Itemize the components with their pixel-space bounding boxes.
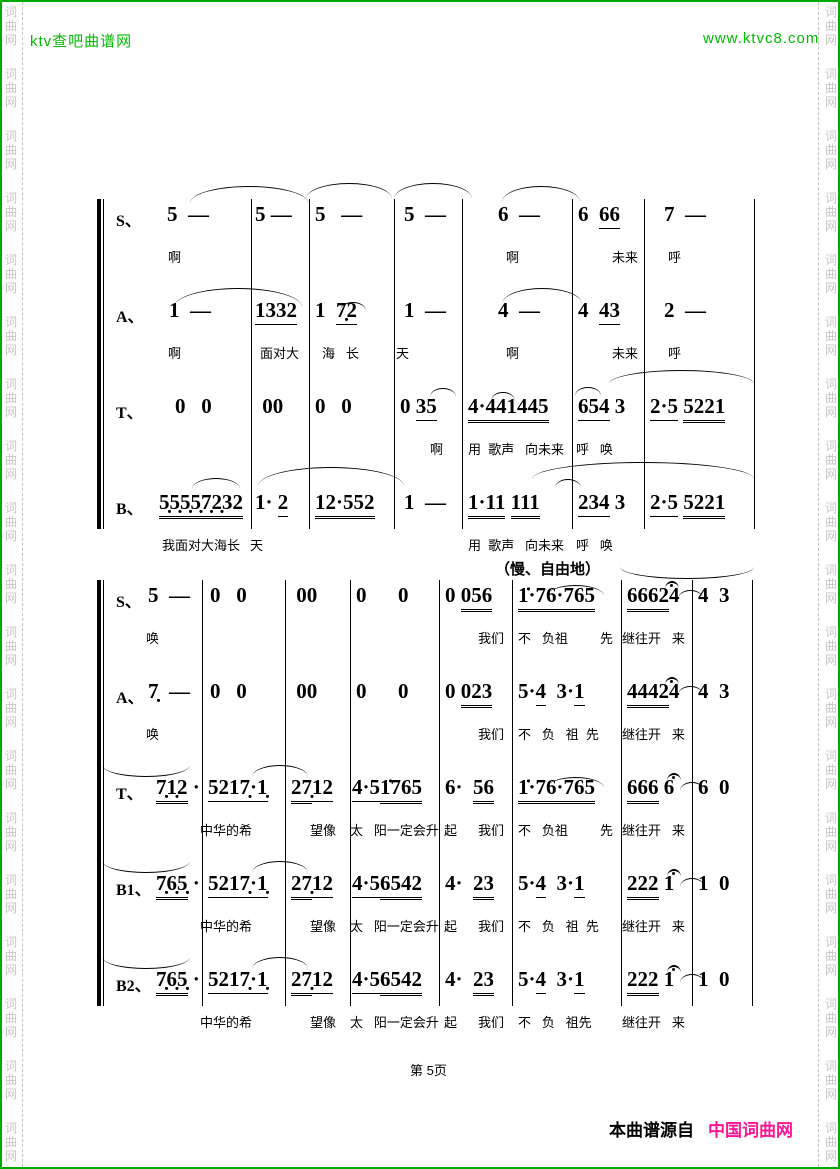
lyric: 天 (250, 535, 263, 554)
note-group: 222 (627, 870, 659, 900)
lyric: 呼 (668, 343, 681, 362)
note-group: 5217̣·1̣ (208, 774, 268, 802)
note-group: 7̣ — (148, 678, 190, 705)
watermark-char: 曲 (825, 640, 837, 652)
measure: 222 1 (621, 870, 692, 908)
watermark-char: 曲 (825, 1074, 837, 1086)
watermark-char: 曲 (5, 1012, 17, 1024)
measure: 4· 23 (439, 966, 512, 1004)
note-group: 222 (627, 966, 659, 996)
watermark-char: 网 (5, 34, 17, 46)
watermark-char: 曲 (5, 764, 17, 776)
watermark-char: 词 (825, 626, 837, 638)
lyric: 唤 (146, 628, 159, 647)
watermark-char: 词 (825, 440, 837, 452)
watermark-char: 网 (825, 34, 837, 46)
measure: 5 — (157, 201, 251, 239)
watermark-char: 曲 (825, 764, 837, 776)
note-group: 234 (578, 489, 610, 517)
barline (754, 199, 755, 295)
note-group: 5 — (167, 201, 209, 228)
measure: 0 056 (439, 582, 512, 620)
watermark-char: 网 (5, 1088, 17, 1100)
watermark-char: 曲 (5, 454, 17, 466)
lyric: 呼 唤 (576, 439, 613, 458)
watermark-char: 曲 (825, 1136, 837, 1148)
note-group: 0 (445, 678, 461, 705)
page-number: 第 5页 (410, 1060, 447, 1079)
watermark-char: 词 (5, 192, 17, 204)
score-page: ktv查吧曲谱网 www.ktvc8.com （慢、自由地） 第 5页 本曲谱源… (0, 0, 840, 1169)
note-group: 1 (315, 297, 336, 324)
note-group: 5· (518, 678, 536, 705)
measure: 5 — (309, 201, 394, 239)
watermark-char: 曲 (5, 82, 17, 94)
measure: 0 0 (157, 393, 251, 431)
watermark-char: 词 (825, 6, 837, 18)
watermark-char: 网 (825, 964, 837, 976)
watermark-char: 网 (825, 406, 837, 418)
lyric: 太 阳一定会升 (350, 1012, 439, 1031)
note-group: 00 (257, 393, 283, 420)
lyric: 不 负祖 (518, 628, 568, 647)
watermark-char: 曲 (825, 888, 837, 900)
measure: 1· 2 (251, 489, 309, 527)
lyric: 我面对大海长 (162, 535, 240, 554)
note-group: 1 (574, 966, 585, 994)
watermark-char: 网 (5, 220, 17, 232)
watermark-char: 曲 (825, 826, 837, 838)
watermark-char: 曲 (825, 950, 837, 962)
lyric: 起 (444, 820, 457, 839)
watermark-char: 网 (825, 530, 837, 542)
measure: 0 0 (350, 678, 439, 716)
lyric: 太 阳一定会升 (350, 916, 439, 935)
watermark-char: 词 (5, 316, 17, 328)
voice-label: A、 (116, 684, 144, 708)
watermark-char: 曲 (825, 1012, 837, 1024)
lyric: 海 长 (322, 343, 359, 362)
lyric: 我们 (478, 820, 504, 839)
note-group: 6 — (498, 201, 540, 228)
note-group: · (188, 774, 200, 801)
note-group: 7 — (664, 201, 706, 228)
measure: 0 0 (202, 678, 285, 716)
lyric: 先 (600, 628, 613, 647)
measure: 5̣5̣5̣5̣7̣2̣32 (157, 489, 251, 527)
note-group: 00 (291, 582, 317, 609)
note-group: 2 (278, 489, 289, 517)
watermark-char: 词 (5, 130, 17, 142)
lyric: 我们 (478, 724, 504, 743)
note-group: 1 (574, 870, 585, 898)
watermark-char: 词 (5, 6, 17, 18)
watermark-char: 曲 (5, 330, 17, 342)
measure: 6· 56 (439, 774, 512, 812)
note-group: 12 (312, 774, 333, 802)
watermark-char: 曲 (5, 888, 17, 900)
site-name-link[interactable]: ktv查吧曲谱网 (30, 30, 132, 51)
measure: 1 0 (692, 870, 752, 908)
watermark-char: 网 (5, 1150, 17, 1162)
lyric: 继往开 来 (622, 916, 685, 935)
watermark-char: 曲 (825, 516, 837, 528)
watermark-char: 词 (825, 936, 837, 948)
source-attribution: 本曲谱源自中国词曲网 (609, 1116, 793, 1141)
note-group: 35 (416, 393, 437, 421)
measure: 654 3 (572, 393, 644, 431)
note-group: 2·5 (650, 393, 678, 421)
note-group: 4· (445, 870, 473, 897)
note-group: 0 0 (356, 678, 409, 705)
note-group: 7̣1̣2 (156, 774, 188, 804)
measure: 4 3 (692, 582, 752, 620)
barline (754, 391, 755, 487)
note-group: 4 3 (698, 582, 730, 609)
watermark-char: 曲 (5, 578, 17, 590)
measure: 00 (251, 393, 309, 431)
watermark-char: 曲 (825, 392, 837, 404)
lyric: 啊 (430, 439, 443, 458)
note-group: 5217̣·1̣ (208, 966, 268, 994)
watermark-char: 网 (5, 282, 17, 294)
watermark-dashed-line-right (818, 2, 819, 1167)
watermark-char: 词 (5, 626, 17, 638)
measure: 5217̣·1̣ (202, 774, 285, 812)
watermark-char: 网 (5, 158, 17, 170)
lyric: 先 (600, 820, 613, 839)
note-group: 23 (473, 870, 494, 900)
note-group: 0 (400, 393, 416, 420)
measure: 00 (285, 678, 350, 716)
fermata-icon (667, 773, 681, 783)
watermark-char: 曲 (5, 516, 17, 528)
watermark-char: 词 (5, 936, 17, 948)
note-group: 0 0 (356, 582, 409, 609)
note-group: · (188, 966, 200, 993)
fermata-icon (665, 677, 679, 687)
lyric: 呼 唤 (576, 535, 613, 554)
watermark-char: 曲 (5, 950, 17, 962)
note-group: 5 — (404, 201, 446, 228)
watermark-char: 曲 (825, 330, 837, 342)
measure: 5·4 3·1 (512, 678, 621, 716)
barline (754, 295, 755, 391)
watermark-char: 词 (5, 750, 17, 762)
measure: 27̣12 (285, 870, 350, 908)
measure: 2 — (644, 297, 754, 335)
voice-row-S: S、5 —5 —5 —5 —6 —6 667 —啊啊未来呼 (102, 199, 762, 295)
measure: 234 3 (572, 489, 644, 527)
system-bracket (97, 199, 101, 529)
note-group: 5· (518, 966, 536, 993)
barline (752, 868, 753, 964)
voice-label: S、 (116, 207, 141, 231)
lyric: 天 (396, 343, 409, 362)
watermark-char: 词 (5, 254, 17, 266)
watermark-char: 词 (825, 254, 837, 266)
note-group: 3· (546, 870, 574, 897)
lyric: 中华的希 (200, 1012, 252, 1031)
watermark-char: 词 (5, 564, 17, 576)
watermark-char: 网 (825, 840, 837, 852)
note-group: 12·552 (315, 489, 375, 519)
note-group: 1· (255, 489, 278, 516)
watermark-char: 曲 (5, 392, 17, 404)
lyric: 我们 (478, 628, 504, 647)
watermark-char: 网 (5, 840, 17, 852)
watermark-char: 词 (5, 440, 17, 452)
lyric: 不 负 祖 先 (518, 724, 599, 743)
note-group: 3· (546, 678, 574, 705)
note-group: 23 (473, 966, 494, 996)
lyric: 望像 (310, 916, 336, 935)
barline (752, 772, 753, 868)
note-group: 4·5 (352, 870, 380, 898)
measure: 7̣6̣5̣ · (142, 870, 202, 908)
watermark-char: 词 (825, 564, 837, 576)
note-group: 6662 (627, 582, 669, 612)
lyric: 啊 (168, 247, 181, 266)
lyric: 啊 (506, 247, 519, 266)
watermark-char: 词 (5, 1060, 17, 1072)
watermark-char: 网 (825, 282, 837, 294)
lyric: 我们 (478, 916, 504, 935)
note-group: 1 (574, 678, 585, 706)
watermark-char: 网 (825, 344, 837, 356)
measure: 27̣12 (285, 774, 350, 812)
watermark-char: 词 (825, 68, 837, 80)
measure: 5 — (394, 201, 462, 239)
note-group: 0 (445, 582, 461, 609)
note-group: 6542 (380, 870, 422, 900)
measure: 4 43 (572, 297, 644, 335)
measure: 66624 (621, 582, 692, 620)
barline (754, 487, 755, 529)
watermark-char: 曲 (5, 144, 17, 156)
note-group: 12 (312, 870, 333, 898)
voice-label: S、 (116, 588, 141, 612)
watermark-char: 词 (825, 750, 837, 762)
note-group: 27̣ (291, 774, 312, 804)
watermark-char: 词 (825, 192, 837, 204)
measure: 4 3 (692, 678, 752, 716)
watermark-char: 词 (5, 502, 17, 514)
measure: 0 023 (439, 678, 512, 716)
voice-row-S: S、5 —0 0 000 00 0561̇·76·765666244 3唤我们不… (102, 580, 762, 676)
note-group: 5· (518, 870, 536, 897)
watermark-char: 曲 (825, 20, 837, 32)
note-group: 654 (578, 393, 610, 421)
voice-label: B、 (116, 495, 143, 519)
note-group: 4·5 (352, 774, 380, 802)
measure: 2·5 5221 (644, 393, 754, 431)
note-group: 0 0 (210, 678, 247, 705)
lyric: 继往开 来 (622, 724, 685, 743)
note-group: 43 (599, 297, 620, 325)
note-group: 111 (511, 489, 540, 519)
note-group: 666 (627, 774, 659, 804)
note-group: 1·11 (468, 489, 505, 519)
lyric: 不 负 祖先 (518, 1012, 592, 1031)
watermark-char: 曲 (825, 454, 837, 466)
watermark-char: 词 (825, 502, 837, 514)
measure: 1·11 111 (462, 489, 572, 527)
measure: 7 — (644, 201, 754, 239)
measure: 6 — (462, 201, 572, 239)
watermark-char: 网 (825, 1026, 837, 1038)
watermark-char: 曲 (5, 826, 17, 838)
measure: 0 0 (309, 393, 394, 431)
measure: 666 6 (621, 774, 692, 812)
lyric: 呼 (668, 247, 681, 266)
note-group: 4442 (627, 678, 669, 708)
note-group: 056 (461, 582, 493, 612)
slur-line (190, 186, 308, 203)
watermark-char: 网 (825, 654, 837, 666)
watermark-char: 曲 (825, 702, 837, 714)
watermark-char: 网 (5, 716, 17, 728)
note-group: 0 0 (210, 582, 247, 609)
watermark-char: 词 (5, 812, 17, 824)
site-url-link[interactable]: www.ktvc8.com (703, 30, 819, 47)
lyric: 望像 (310, 1012, 336, 1031)
note-group: 1 — (404, 489, 446, 516)
note-group: 5221 (683, 489, 725, 519)
lyric: 望像 (310, 820, 336, 839)
note-group: 1̇765 (380, 774, 422, 804)
watermark-char: 网 (5, 778, 17, 790)
measure: 27̣12 (285, 966, 350, 1004)
lyric: 继往开 来 (622, 1012, 685, 1031)
fermata-icon (667, 869, 681, 879)
note-group: 023 (461, 678, 493, 708)
barline (752, 964, 753, 1006)
note-group: 4 (536, 678, 547, 706)
note-group: 6542 (380, 966, 422, 996)
watermark-char: 网 (825, 1088, 837, 1100)
watermark-char: 曲 (825, 144, 837, 156)
watermark-char: 词 (5, 1122, 17, 1134)
measure: 1 — (394, 489, 462, 527)
lyric: 面对大 (260, 343, 299, 362)
lyric: 啊 (506, 343, 519, 362)
watermark-char: 词 (825, 1122, 837, 1134)
fermata-icon (665, 581, 679, 591)
note-group: 5217̣·1̣ (208, 870, 268, 898)
system-bracket (97, 580, 101, 1006)
watermark-char: 曲 (5, 20, 17, 32)
lyric: 唤 (146, 724, 159, 743)
note-group: 4·5 (352, 966, 380, 994)
measure: 5·4 3·1 (512, 966, 621, 1004)
slur-line (306, 183, 392, 199)
measure: 222 1 (621, 966, 692, 1004)
watermark-char: 曲 (5, 268, 17, 280)
watermark-char: 词 (5, 874, 17, 886)
measure: 6 0 (692, 774, 752, 812)
measure: 4· 23 (439, 870, 512, 908)
measure: 4·51̇765 (350, 774, 439, 812)
measure: 0 35 (394, 393, 462, 431)
lyric: 起 (444, 916, 457, 935)
note-group: 3· (546, 966, 574, 993)
note-group: 5 — (315, 201, 362, 228)
watermark-char: 词 (825, 130, 837, 142)
measure: 5 — (142, 582, 202, 620)
lyric: 继往开 来 (622, 628, 685, 647)
watermark-char: 词 (825, 378, 837, 390)
watermark-char: 曲 (825, 206, 837, 218)
voice-label: T、 (116, 780, 143, 804)
watermark-char: 曲 (5, 1136, 17, 1148)
note-group: 27̣ (291, 966, 312, 996)
voice-label: A、 (116, 303, 144, 327)
lyric: 用 歌声 向未来 (468, 439, 564, 458)
watermark-char: 词 (825, 316, 837, 328)
source-prefix: 本曲谱源自 (609, 1121, 694, 1140)
watermark-char: 词 (5, 998, 17, 1010)
note-group: 6 (578, 201, 599, 228)
slur-line (502, 186, 580, 202)
note-group: 7̣6̣5̣ (156, 966, 188, 996)
lyric: 我们 (478, 1012, 504, 1031)
voice-row-A: A、7̣ —0 0 000 00 0235·4 3·1444244 3唤我们不 … (102, 676, 762, 772)
note-group: 56 (473, 774, 494, 804)
measure: 0 0 (350, 582, 439, 620)
note-group: 5̣5̣5̣5̣7̣2̣32 (159, 489, 243, 519)
note-group: 4· (445, 966, 473, 993)
lyric: 未来 (612, 247, 638, 266)
note-group: 6· (445, 774, 473, 801)
lyric: 太 阳一定会升 (350, 820, 439, 839)
watermark-char: 词 (825, 688, 837, 700)
note-group: 27̣ (291, 870, 312, 900)
watermark-char: 网 (5, 654, 17, 666)
note-group: 5221 (683, 393, 725, 423)
watermark-char: 曲 (825, 578, 837, 590)
watermark-char: 网 (5, 96, 17, 108)
watermark-char: 曲 (5, 702, 17, 714)
watermark-char: 网 (825, 96, 837, 108)
fermata-icon (667, 965, 681, 975)
watermark-char: 网 (5, 344, 17, 356)
watermark-char: 网 (5, 1026, 17, 1038)
measure: 1 — (394, 297, 462, 335)
note-group: 0 0 (175, 393, 212, 420)
measure: 7̣1̣2 · (142, 774, 202, 812)
note-group: 3 (610, 393, 626, 420)
measure: 5 — (251, 201, 309, 239)
voice-row-B1: B1、7̣6̣5̣ ·5217̣·1̣27̣124·565424· 235·4 … (102, 868, 762, 964)
watermark-char: 网 (5, 592, 17, 604)
measure: 12·552 (309, 489, 394, 527)
watermark-char: 曲 (5, 640, 17, 652)
note-group: 00 (291, 678, 317, 705)
lyric: 起 (444, 1012, 457, 1031)
source-site-link[interactable]: 中国词曲网 (708, 1121, 793, 1140)
watermark-char: 词 (5, 68, 17, 80)
note-group: 0 0 (315, 393, 352, 420)
watermark-char: 曲 (5, 1074, 17, 1086)
watermark-char: 网 (825, 1150, 837, 1162)
watermark-char: 网 (825, 778, 837, 790)
measure: 5·4 3·1 (512, 870, 621, 908)
watermark-char: 词 (825, 812, 837, 824)
watermark-char: 曲 (5, 206, 17, 218)
note-group: 12 (312, 966, 333, 994)
measure: 00 (285, 582, 350, 620)
